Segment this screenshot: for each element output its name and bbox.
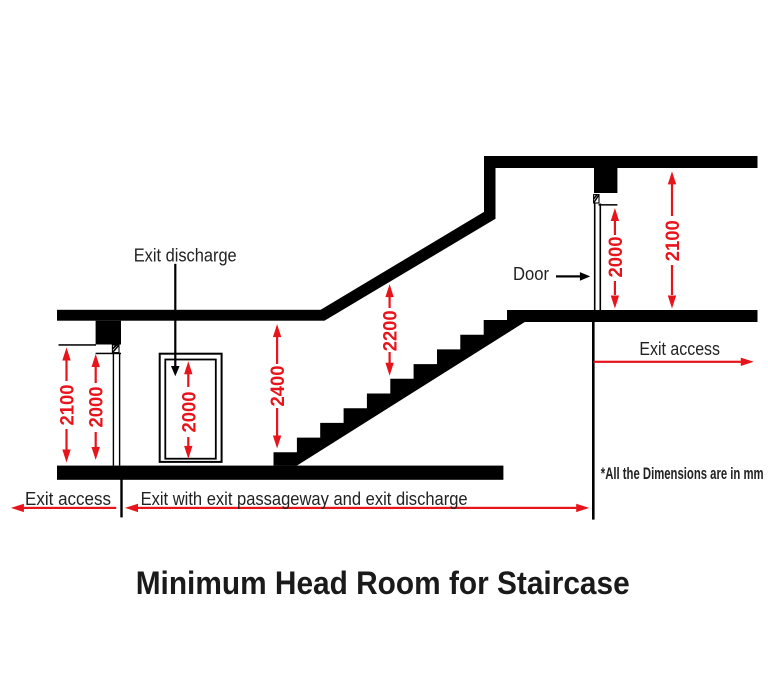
svg-text:2100: 2100 [663,220,684,261]
svg-text:2400: 2400 [268,366,289,407]
svg-text:2200: 2200 [381,310,402,351]
svg-text:Minimum Head Room for Staircas: Minimum Head Room for Staircase [136,565,630,601]
svg-text:Door: Door [513,264,549,284]
svg-text:Exit access: Exit access [639,339,720,359]
svg-text:2000: 2000 [179,392,200,433]
svg-text:2000: 2000 [87,387,108,428]
svg-text:Exit discharge: Exit discharge [134,245,237,265]
svg-text:2000: 2000 [606,237,627,278]
svg-text:Exit with exit passageway and: Exit with exit passageway and exit disch… [141,489,468,509]
svg-text:*All the Dimensions are in mm: *All the Dimensions are in mm [601,464,764,483]
svg-text:2100: 2100 [58,385,79,426]
svg-text:Exit access: Exit access [25,489,111,509]
